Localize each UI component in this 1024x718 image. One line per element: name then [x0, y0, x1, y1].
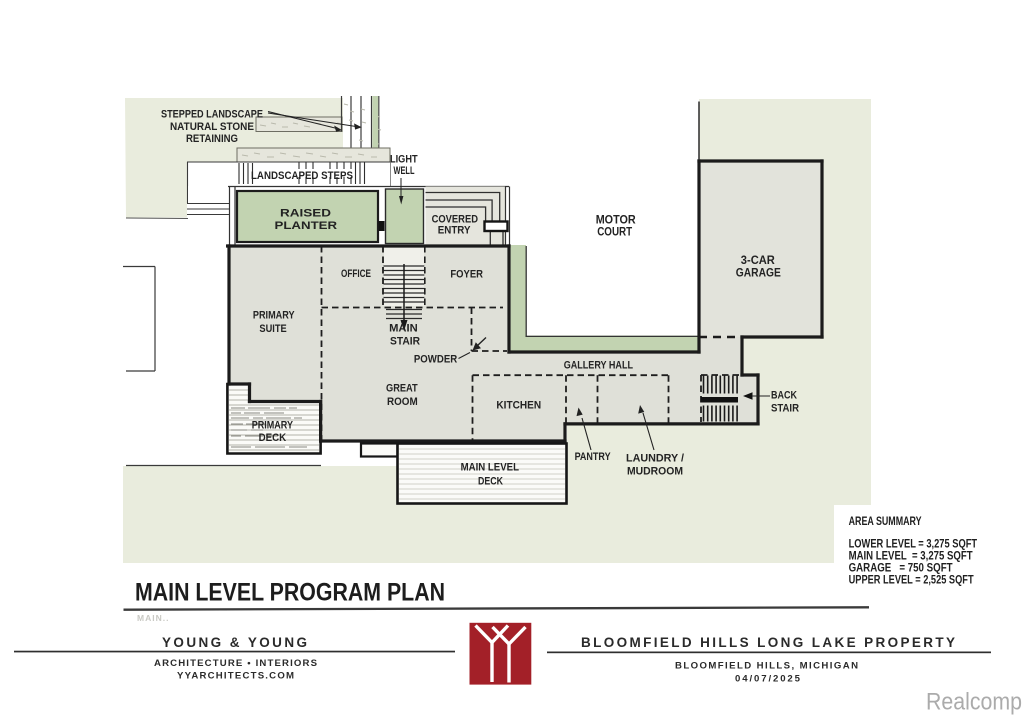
svg-text:PRIMARY: PRIMARY — [253, 310, 295, 322]
svg-text:SUITE: SUITE — [259, 323, 286, 335]
svg-text:WELL: WELL — [394, 165, 415, 177]
svg-text:PANTRY: PANTRY — [575, 451, 612, 463]
svg-text:PRIMARY: PRIMARY — [252, 420, 294, 432]
svg-text:MAIN LEVEL: MAIN LEVEL — [461, 462, 520, 474]
svg-text:GARAGE = 750 SQFT: GARAGE = 750 SQFT — [849, 563, 953, 575]
svg-text:LANDSCAPED STEPS: LANDSCAPED STEPS — [251, 170, 353, 182]
svg-text:ENTRY: ENTRY — [438, 225, 471, 237]
svg-text:RETAINING: RETAINING — [186, 133, 238, 145]
svg-text:STAIR: STAIR — [771, 403, 799, 415]
svg-text:LAUNDRY /: LAUNDRY / — [626, 453, 684, 465]
svg-text:STAIR: STAIR — [390, 336, 420, 348]
svg-text:UPPER LEVEL = 2,525 SQFT: UPPER LEVEL = 2,525 SQFT — [849, 575, 974, 587]
svg-text:LOWER LEVEL = 3,275 SQFT: LOWER LEVEL = 3,275 SQFT — [849, 539, 978, 551]
svg-text:BACK: BACK — [771, 390, 797, 402]
svg-text:DECK: DECK — [259, 432, 287, 444]
svg-text:AREA SUMMARY: AREA SUMMARY — [849, 516, 922, 528]
svg-text:NATURAL STONE: NATURAL STONE — [170, 121, 254, 133]
svg-text:ROOM: ROOM — [387, 396, 418, 408]
svg-text:MAIN..: MAIN.. — [137, 613, 169, 623]
svg-text:KITCHEN: KITCHEN — [496, 400, 541, 412]
svg-text:YYARCHITECTS.COM: YYARCHITECTS.COM — [177, 671, 294, 682]
svg-text:MAIN LEVEL PROGRAM PLAN: MAIN LEVEL PROGRAM PLAN — [135, 579, 445, 607]
svg-text:GREAT: GREAT — [386, 383, 418, 395]
svg-text:MUDROOM: MUDROOM — [627, 466, 683, 478]
svg-text:GALLERY HALL: GALLERY HALL — [564, 360, 634, 372]
svg-text:Realcomp: Realcomp — [926, 689, 1022, 716]
svg-text:DECK: DECK — [478, 476, 503, 488]
svg-text:STEPPED LANDSCAPE: STEPPED LANDSCAPE — [161, 109, 263, 121]
svg-text:RAISED: RAISED — [280, 208, 331, 220]
svg-text:COURT: COURT — [597, 224, 633, 238]
svg-text:OFFICE: OFFICE — [341, 268, 371, 280]
svg-text:FOYER: FOYER — [450, 269, 483, 281]
svg-text:PLANTER: PLANTER — [275, 220, 338, 232]
svg-text:BLOOMFIELD HILLS, MICHIGAN: BLOOMFIELD HILLS, MICHIGAN — [675, 661, 858, 672]
svg-text:04/07/2025: 04/07/2025 — [735, 674, 801, 685]
svg-text:YOUNG & YOUNG: YOUNG & YOUNG — [162, 635, 307, 650]
svg-text:LIGHT: LIGHT — [390, 153, 418, 165]
svg-text:MAIN: MAIN — [389, 323, 418, 335]
svg-text:POWDER: POWDER — [414, 354, 457, 366]
svg-text:GARAGE: GARAGE — [736, 265, 781, 279]
svg-text:ARCHITECTURE • INTERIORS: ARCHITECTURE • INTERIORS — [154, 658, 318, 669]
svg-text:MAIN LEVEL = 3,275 SQFT: MAIN LEVEL = 3,275 SQFT — [849, 551, 973, 563]
